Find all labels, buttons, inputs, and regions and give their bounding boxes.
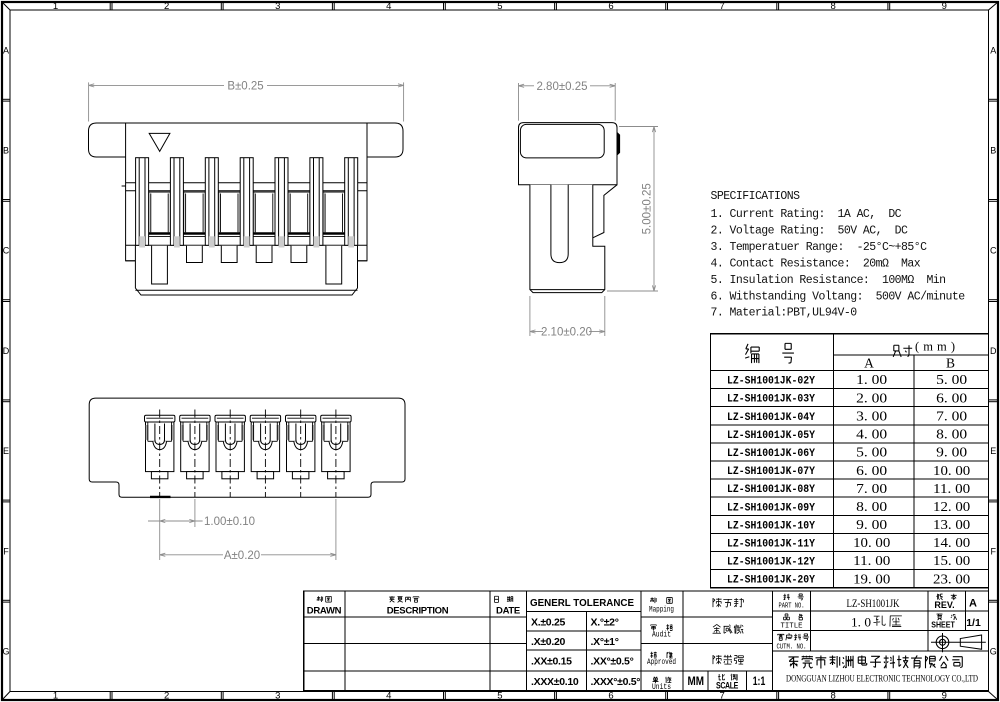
svg-text:MM: MM [688, 674, 705, 688]
svg-text:SHEET: SHEET [931, 620, 955, 630]
svg-text:B: B [946, 355, 955, 370]
svg-text:DONGGUAN LIZHOU ELECTRONIC TEC: DONGGUAN LIZHOU ELECTRONIC TECHNOLOGY CO… [786, 674, 978, 684]
svg-text:4: 4 [386, 1, 391, 12]
svg-text:4: 4 [386, 691, 391, 702]
svg-text:PART NO.: PART NO. [779, 602, 805, 610]
svg-text:10. 00: 10. 00 [933, 463, 970, 478]
svg-text:1: 1 [53, 691, 58, 702]
svg-text:4. 00: 4. 00 [856, 427, 887, 442]
svg-text:.XX±0.15: .XX±0.15 [531, 656, 572, 668]
svg-text:2: 2 [164, 1, 169, 12]
svg-text:.X±0.20: .X±0.20 [531, 636, 565, 648]
svg-text:7. Material:PBT,UL94V-0: 7. Material:PBT,UL94V-0 [711, 307, 858, 320]
svg-text:LZ-SH1001JK-12Y: LZ-SH1001JK-12Y [727, 557, 815, 569]
svg-text:6: 6 [608, 1, 613, 12]
svg-text:9: 9 [942, 691, 947, 702]
svg-text:11. 00: 11. 00 [853, 553, 890, 568]
svg-text:12. 00: 12. 00 [933, 499, 970, 514]
svg-text:GENERL TOLERANCE: GENERL TOLERANCE [530, 597, 634, 609]
svg-text:.XXX±0.10: .XXX±0.10 [531, 676, 579, 688]
svg-text:1:1: 1:1 [753, 674, 766, 688]
svg-text:11. 00: 11. 00 [933, 481, 970, 496]
svg-text:B±0.25: B±0.25 [227, 81, 263, 93]
svg-text:REV.: REV. [934, 600, 954, 610]
svg-text:1. Current Rating: 1A AC, DC: 1. Current Rating: 1A AC, DC [711, 208, 902, 221]
svg-text:2. 00: 2. 00 [856, 390, 887, 405]
svg-text:9. 00: 9. 00 [856, 517, 887, 532]
svg-text:8. 00: 8. 00 [856, 499, 887, 514]
svg-text:E: E [990, 446, 996, 456]
svg-text:LZ-SH1001JK-06Y: LZ-SH1001JK-06Y [727, 448, 815, 460]
svg-text:5. 00: 5. 00 [936, 372, 967, 387]
svg-text:A: A [969, 598, 977, 610]
svg-text:LZ-SH1001JK-20Y: LZ-SH1001JK-20Y [727, 575, 815, 587]
svg-text:Mapping: Mapping [649, 606, 674, 615]
svg-text:5. 00: 5. 00 [856, 445, 887, 460]
svg-text:DRAWN: DRAWN [307, 606, 342, 617]
svg-text:8: 8 [831, 691, 836, 702]
svg-text:DATE: DATE [496, 606, 520, 617]
svg-text:23. 00: 23. 00 [933, 571, 970, 586]
svg-text:2: 2 [164, 691, 169, 702]
svg-text:LZ-SH1001JK-04Y: LZ-SH1001JK-04Y [727, 412, 815, 424]
svg-text:G: G [2, 647, 9, 657]
svg-text:2.10±0.20: 2.10±0.20 [541, 327, 592, 339]
svg-text:5. Insulation Resistance: 100: 5. Insulation Resistance: 100MΩ Min [711, 274, 946, 287]
svg-text:6. 00: 6. 00 [856, 463, 887, 478]
svg-text:5.00±0.25: 5.00±0.25 [642, 183, 654, 234]
svg-text:2. Voltage Rating: 50V AC, D: 2. Voltage Rating: 50V AC, DC [711, 224, 909, 237]
svg-text:5: 5 [497, 691, 502, 702]
svg-text:1. 00: 1. 00 [856, 372, 887, 387]
svg-text:9: 9 [942, 1, 947, 12]
svg-text:8: 8 [831, 1, 836, 12]
svg-text:.X°±1°: .X°±1° [591, 636, 619, 648]
svg-text:1.00±0.10: 1.00±0.10 [204, 516, 255, 528]
svg-text:CUTM. NO.: CUTM. NO. [777, 644, 807, 652]
svg-text:5: 5 [497, 1, 502, 12]
svg-text:.XXX°±0.5°: .XXX°±0.5° [591, 676, 641, 688]
svg-text:7. 00: 7. 00 [856, 481, 887, 496]
svg-text:1: 1 [53, 1, 58, 12]
svg-text:2.80±0.25: 2.80±0.25 [536, 81, 587, 93]
svg-text:LZ-SH1001JK-08Y: LZ-SH1001JK-08Y [727, 484, 815, 496]
svg-text:3: 3 [275, 1, 280, 12]
svg-text:A: A [990, 45, 996, 55]
svg-text:F: F [990, 546, 996, 556]
svg-text:A: A [3, 45, 9, 55]
svg-text:F: F [3, 546, 9, 556]
svg-text:7: 7 [719, 1, 724, 12]
svg-text:7. 00: 7. 00 [936, 408, 967, 423]
svg-text:SPECIFICATIONS: SPECIFICATIONS [711, 190, 801, 203]
svg-text:6. 00: 6. 00 [936, 390, 967, 405]
svg-text:4. Contact Resistance: 20mΩ: 4. Contact Resistance: 20mΩ Max [711, 257, 921, 270]
svg-text:3: 3 [275, 691, 280, 702]
svg-text:E: E [3, 446, 9, 456]
svg-text:9. 00: 9. 00 [936, 445, 967, 460]
svg-text:Audit: Audit [652, 631, 671, 640]
svg-text:X.±0.25: X.±0.25 [531, 617, 565, 629]
svg-text:LZ-SH1001JK-11Y: LZ-SH1001JK-11Y [727, 538, 815, 550]
svg-text:TITLE: TITLE [781, 623, 803, 631]
svg-text:LZ-SH1001JK-07Y: LZ-SH1001JK-07Y [727, 466, 815, 478]
svg-text:6. Withstanding Voltang: 500V: 6. Withstanding Voltang: 500V AC/minute [711, 290, 966, 303]
svg-text:15. 00: 15. 00 [933, 553, 970, 568]
svg-text:LZ-SH1001JK-03Y: LZ-SH1001JK-03Y [727, 394, 815, 406]
svg-text:8. 00: 8. 00 [936, 427, 967, 442]
svg-text:A±0.20: A±0.20 [224, 550, 260, 562]
svg-text:LZ-SH1001JK-02Y: LZ-SH1001JK-02Y [727, 376, 815, 388]
svg-text:C: C [990, 246, 997, 256]
svg-text:B: B [990, 146, 996, 156]
svg-text:.XX°±0.5°: .XX°±0.5° [591, 656, 634, 668]
svg-text:19. 00: 19. 00 [853, 571, 890, 586]
svg-text:Units: Units [652, 683, 671, 692]
svg-text:D: D [3, 346, 10, 356]
svg-text:LZ-SH1001JK-09Y: LZ-SH1001JK-09Y [727, 502, 815, 514]
svg-text:14. 00: 14. 00 [933, 535, 970, 550]
svg-text:1. 0: 1. 0 [851, 614, 871, 629]
svg-text:B: B [3, 146, 9, 156]
svg-text:C: C [3, 246, 10, 256]
svg-text:A: A [864, 355, 874, 370]
svg-text:10. 00: 10. 00 [853, 535, 890, 550]
svg-text:1/1: 1/1 [966, 617, 981, 629]
svg-text:Approved: Approved [647, 658, 676, 667]
svg-text:SCALE: SCALE [716, 681, 738, 691]
svg-text:3. Temperatuer Range: -25°C~+: 3. Temperatuer Range: -25°C~+85°C [711, 241, 928, 254]
svg-text:D: D [990, 346, 997, 356]
svg-text:LZ-SH1001JK-10Y: LZ-SH1001JK-10Y [727, 520, 815, 532]
svg-text:7: 7 [719, 691, 724, 702]
svg-text:DESCRIPTION: DESCRIPTION [387, 606, 449, 617]
svg-text:LZ-SH1001JK-05Y: LZ-SH1001JK-05Y [727, 430, 815, 442]
svg-text:13. 00: 13. 00 [933, 517, 970, 532]
svg-text:6: 6 [608, 691, 613, 702]
svg-text:G: G [990, 647, 997, 657]
svg-text:X.°±2°: X.°±2° [591, 617, 619, 629]
svg-text:LZ-SH1001JK: LZ-SH1001JK [847, 596, 900, 610]
svg-text:3. 00: 3. 00 [856, 408, 887, 423]
